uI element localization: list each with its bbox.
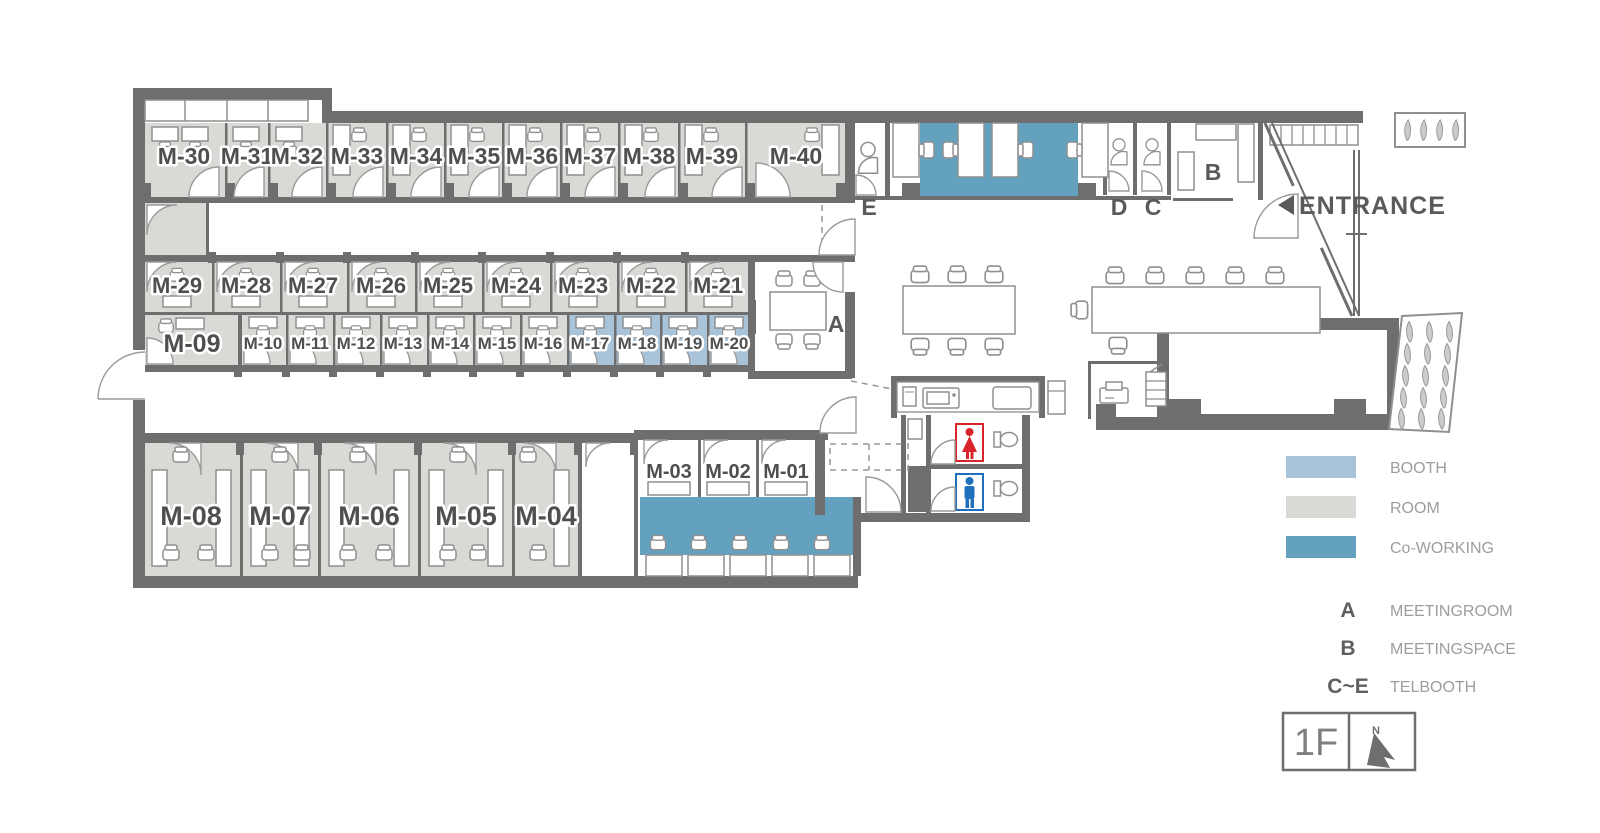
legend-booth-label: BOOTH xyxy=(1390,460,1447,477)
room-label: M-36 xyxy=(506,143,558,169)
room-label: M-27 xyxy=(288,273,338,298)
room-label: M-40 xyxy=(770,143,822,169)
telbooth-e: E xyxy=(856,142,878,220)
shoe-shelf xyxy=(1270,125,1358,145)
floor-badge: 1F N xyxy=(1283,713,1415,770)
fridge-icon xyxy=(1048,381,1065,414)
plant-panel-right xyxy=(1389,313,1462,432)
room-label: M-10 xyxy=(244,334,283,353)
printer-icon xyxy=(1100,382,1128,403)
room-label: M-22 xyxy=(626,273,676,298)
room-label: M-08 xyxy=(160,501,222,531)
legend-a-key: A xyxy=(1340,599,1355,622)
room-label: M-13 xyxy=(384,334,423,353)
room-label: M-33 xyxy=(331,143,383,169)
room-label: M-07 xyxy=(249,501,311,531)
room-label: M-17 xyxy=(571,334,610,353)
room-label: M-11 xyxy=(291,334,329,353)
rooms-small-row: M-03 M-02 M-01 xyxy=(644,440,809,495)
room-label: M-32 xyxy=(271,143,323,169)
room-label: M-25 xyxy=(423,273,473,298)
room-label: M-16 xyxy=(524,334,563,353)
room-label: M-04 xyxy=(515,501,577,531)
legend-room-label: ROOM xyxy=(1390,500,1440,517)
person-icon xyxy=(1144,139,1160,165)
room-label: M-28 xyxy=(221,273,271,298)
legend-ce-key: C~E xyxy=(1327,675,1368,698)
person-icon xyxy=(859,142,878,173)
room-m-01: M-01 xyxy=(762,440,809,495)
room-label: M-20 xyxy=(710,334,749,353)
legend-coworking-label: Co-WORKING xyxy=(1390,540,1494,557)
person-icon xyxy=(1111,139,1127,165)
room-m-03: M-03 xyxy=(644,440,692,495)
entrance-label: ENTRANCE xyxy=(1299,192,1446,220)
sink-icon xyxy=(993,387,1031,409)
room-label: M-29 xyxy=(152,273,202,298)
legend: BOOTH ROOM Co-WORKING A MEETINGROOM B ME… xyxy=(1286,456,1516,698)
cup-icon xyxy=(903,387,916,406)
zone-a-label: A xyxy=(828,311,845,337)
zone-c-label: C xyxy=(1145,194,1162,220)
legend-booth-swatch xyxy=(1286,456,1356,478)
printer-nook xyxy=(1100,364,1166,406)
meeting-space-b: B xyxy=(1178,124,1254,190)
zone-b-label: B xyxy=(1205,159,1222,185)
legend-a-label: MEETINGROOM xyxy=(1390,603,1513,620)
legend-ce-label: TELBOOTH xyxy=(1390,679,1476,696)
legend-b-label: MEETINGSPACE xyxy=(1390,641,1516,658)
mens-restroom xyxy=(931,474,1018,511)
room-label: M-26 xyxy=(356,273,406,298)
room-label: M-19 xyxy=(664,334,703,353)
compass-north-label: N xyxy=(1372,725,1380,737)
zone-d-label: D xyxy=(1111,194,1128,220)
closets xyxy=(145,100,308,121)
legend-room-swatch xyxy=(1286,496,1356,518)
room-label: M-21 xyxy=(693,273,743,298)
room-label: M-01 xyxy=(763,461,809,483)
telbooth-d: D xyxy=(1109,139,1129,220)
legend-b-key: B xyxy=(1340,637,1355,660)
toilet-icon xyxy=(994,432,1018,447)
microwave-icon xyxy=(923,388,959,408)
toilet-icon xyxy=(994,481,1018,496)
room-label: M-35 xyxy=(448,143,501,169)
room-label: M-18 xyxy=(618,334,657,353)
compass-arrow-icon xyxy=(1367,733,1395,768)
floor-plan: M-30 M-31 M-32 M-33 M-34 M-35 xyxy=(0,0,1600,833)
left-exit-door xyxy=(98,350,145,400)
room-label: M-05 xyxy=(435,501,497,531)
room-label: M-03 xyxy=(646,461,692,483)
room-label: M-23 xyxy=(558,273,608,298)
floor-label: 1F xyxy=(1294,722,1338,764)
room-label: M-30 xyxy=(158,143,210,169)
room-m-02: M-02 xyxy=(704,440,751,495)
room-label: M-24 xyxy=(491,273,542,298)
room-label: M-09 xyxy=(164,330,221,358)
room-label: M-34 xyxy=(390,143,443,169)
room-label: M-38 xyxy=(623,143,676,169)
zone-e-label: E xyxy=(861,194,876,220)
room-label: M-14 xyxy=(431,334,470,353)
plant-panel-top xyxy=(1395,113,1465,147)
room-label: M-37 xyxy=(564,143,616,169)
legend-coworking-swatch xyxy=(1286,536,1356,558)
room-label: M-02 xyxy=(705,461,751,483)
room-label: M-06 xyxy=(338,501,400,531)
compass: N xyxy=(1367,725,1395,768)
room-label: M-12 xyxy=(337,334,376,353)
floor-plan-page: M-30 M-31 M-32 M-33 M-34 M-35 xyxy=(0,0,1600,833)
room-label: M-31 xyxy=(221,143,274,169)
womens-restroom xyxy=(931,424,1018,464)
corridor-door xyxy=(866,477,901,512)
room-label: M-15 xyxy=(478,334,517,353)
telbooth-c: C xyxy=(1142,139,1162,220)
meeting-room-a: A xyxy=(770,262,844,349)
room-label: M-39 xyxy=(686,143,738,169)
